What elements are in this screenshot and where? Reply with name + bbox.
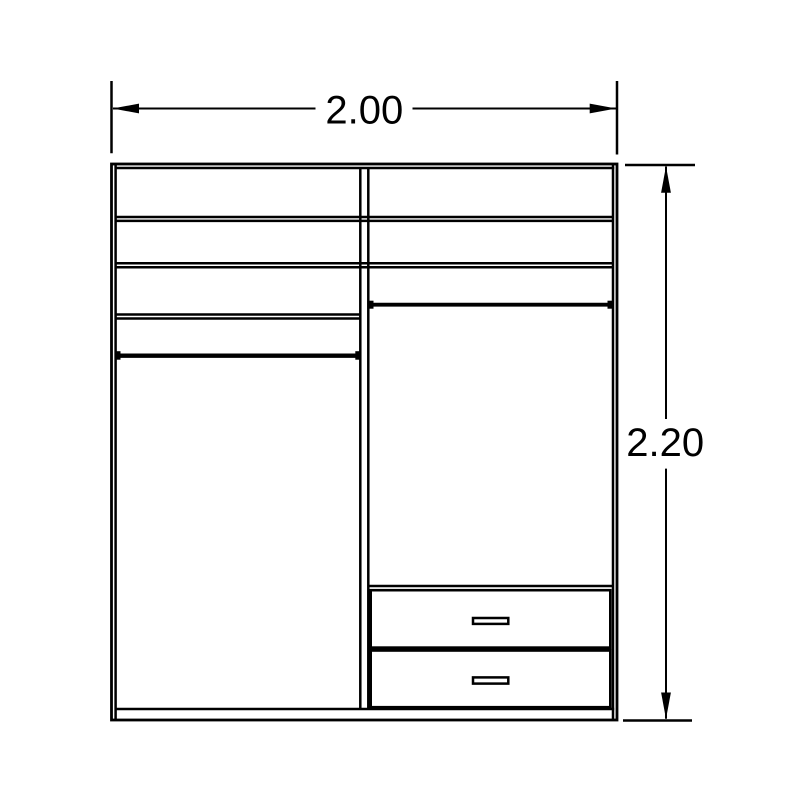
svg-text:2.20: 2.20 (626, 421, 704, 465)
svg-text:2.00: 2.00 (325, 88, 403, 132)
